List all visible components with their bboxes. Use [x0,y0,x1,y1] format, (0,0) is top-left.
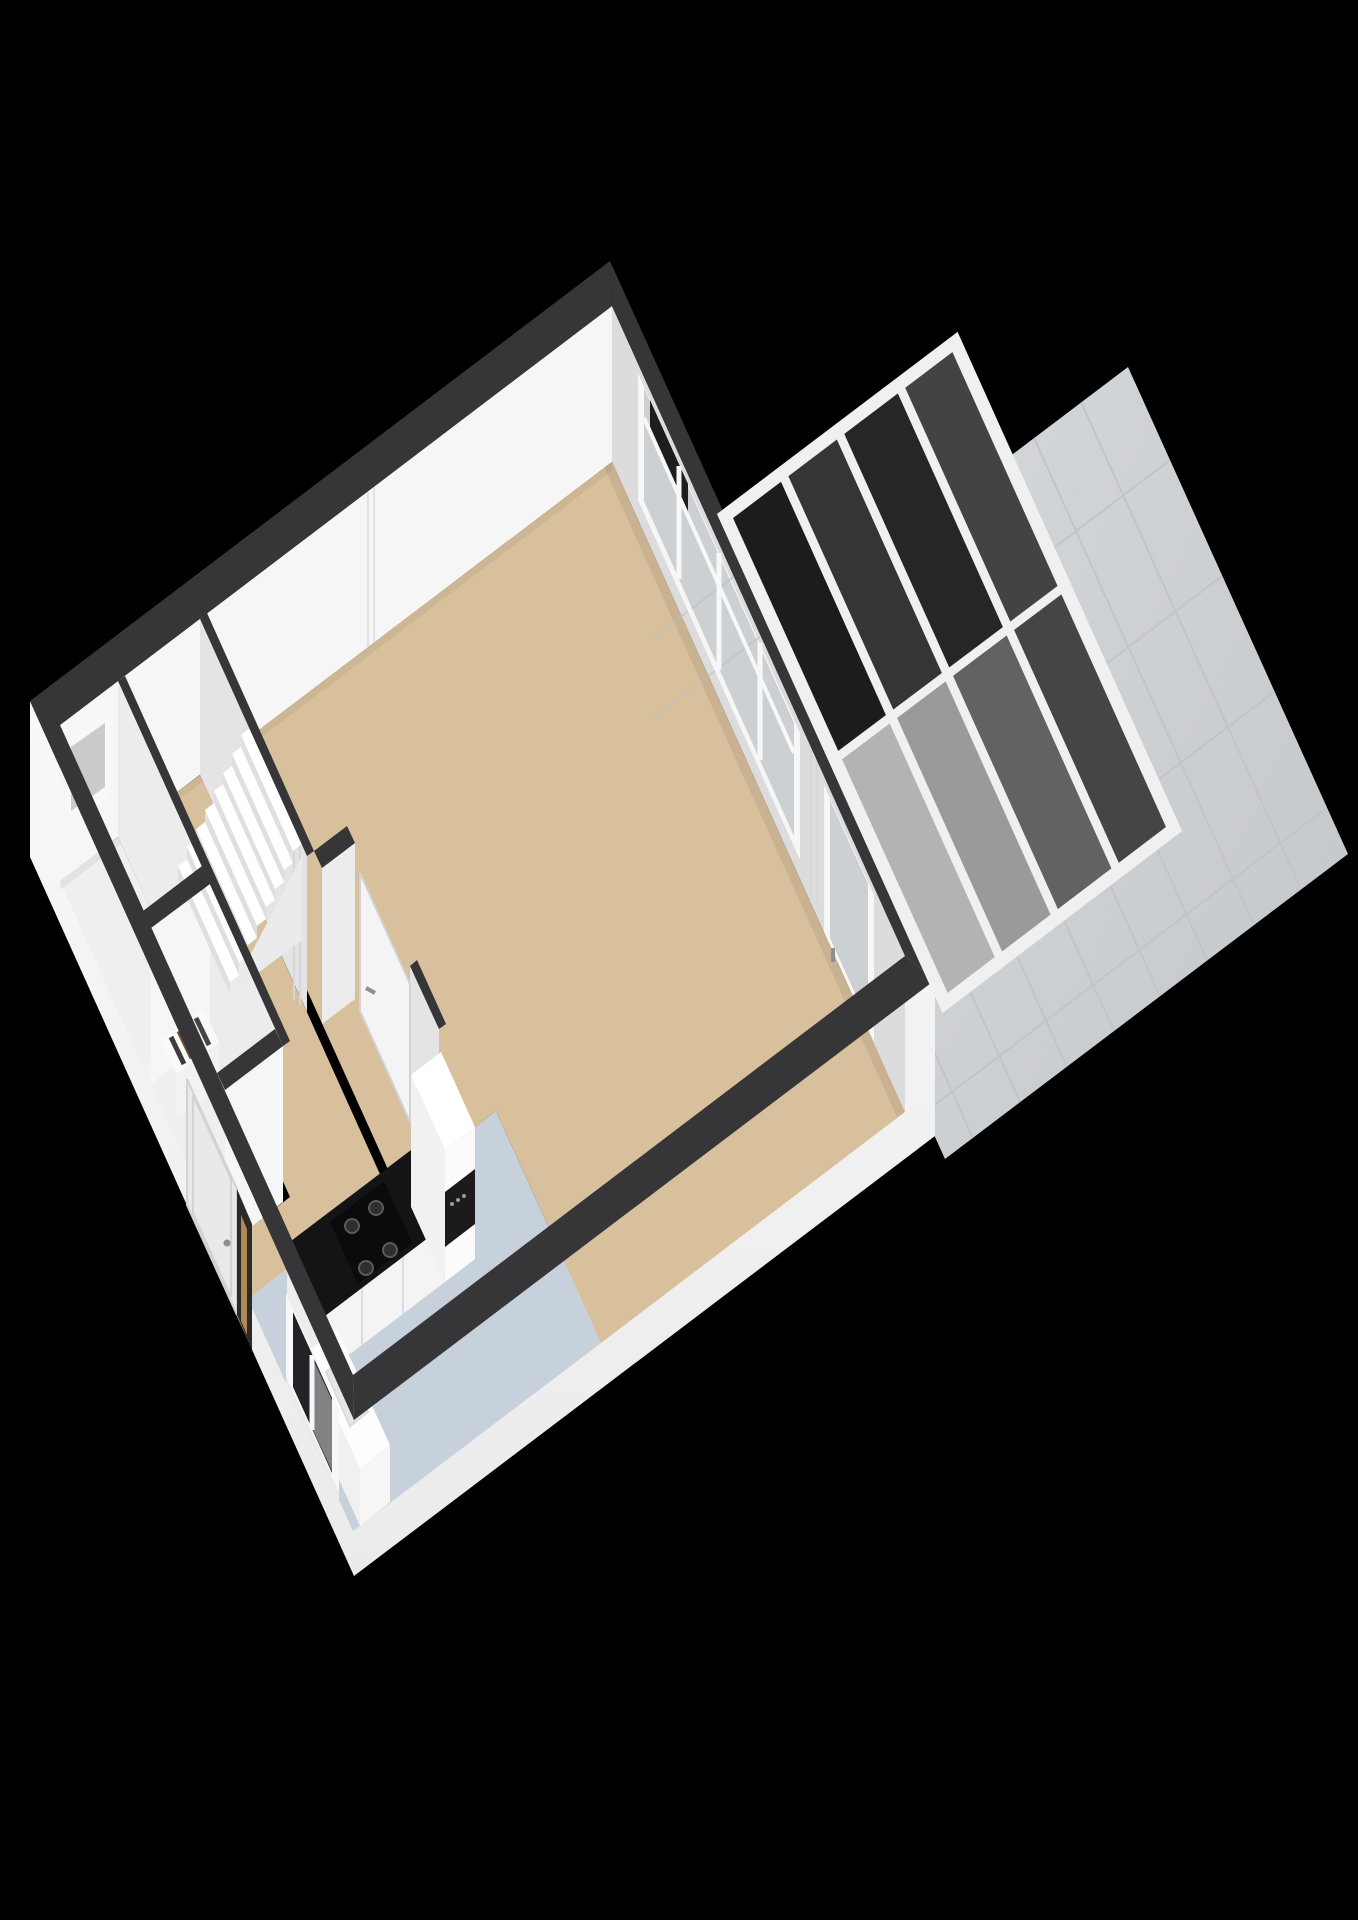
burner [369,1201,383,1215]
front-door-handle [224,1240,231,1247]
oven-light [462,1194,466,1198]
burner [345,1219,359,1233]
burner [359,1261,373,1275]
oven-light [456,1198,460,1202]
partition-jog-face [322,843,355,1024]
floorplan-stage [0,0,1358,1920]
burner [383,1243,397,1257]
sidelight-floor-sliver [241,1215,247,1335]
floorplan-3d-scene [0,0,1358,1920]
oven-light [450,1202,454,1206]
